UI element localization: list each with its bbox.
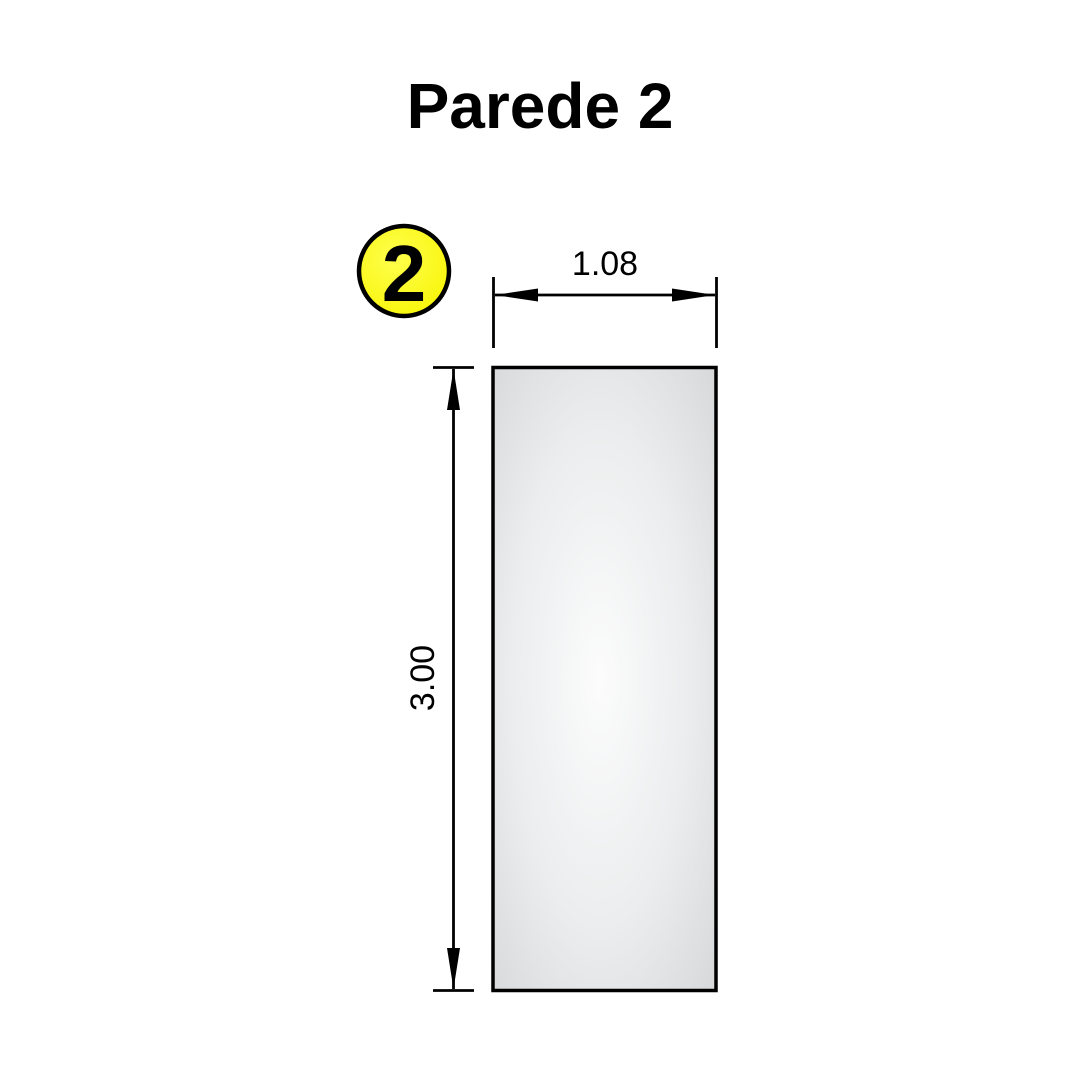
- height-dimension: 3.00: [404, 368, 474, 991]
- width-arrowhead-right: [672, 289, 715, 302]
- wall-number-balloon: 2: [359, 226, 449, 318]
- height-arrowhead-top: [447, 369, 460, 410]
- width-arrowhead-left: [495, 289, 538, 302]
- height-dimension-label: 3.00: [404, 645, 442, 711]
- balloon-number: 2: [382, 229, 427, 318]
- width-dimension: 1.08: [494, 245, 717, 348]
- wall-rectangle: [493, 368, 716, 991]
- diagram-canvas: Parede 2 2 1.08 3.00: [0, 0, 1080, 1080]
- diagram-title: Parede 2: [407, 70, 674, 142]
- width-dimension-label: 1.08: [572, 245, 638, 283]
- wall-diagram: Parede 2 2 1.08 3.00: [0, 0, 1080, 1080]
- height-arrowhead-bottom: [447, 948, 460, 989]
